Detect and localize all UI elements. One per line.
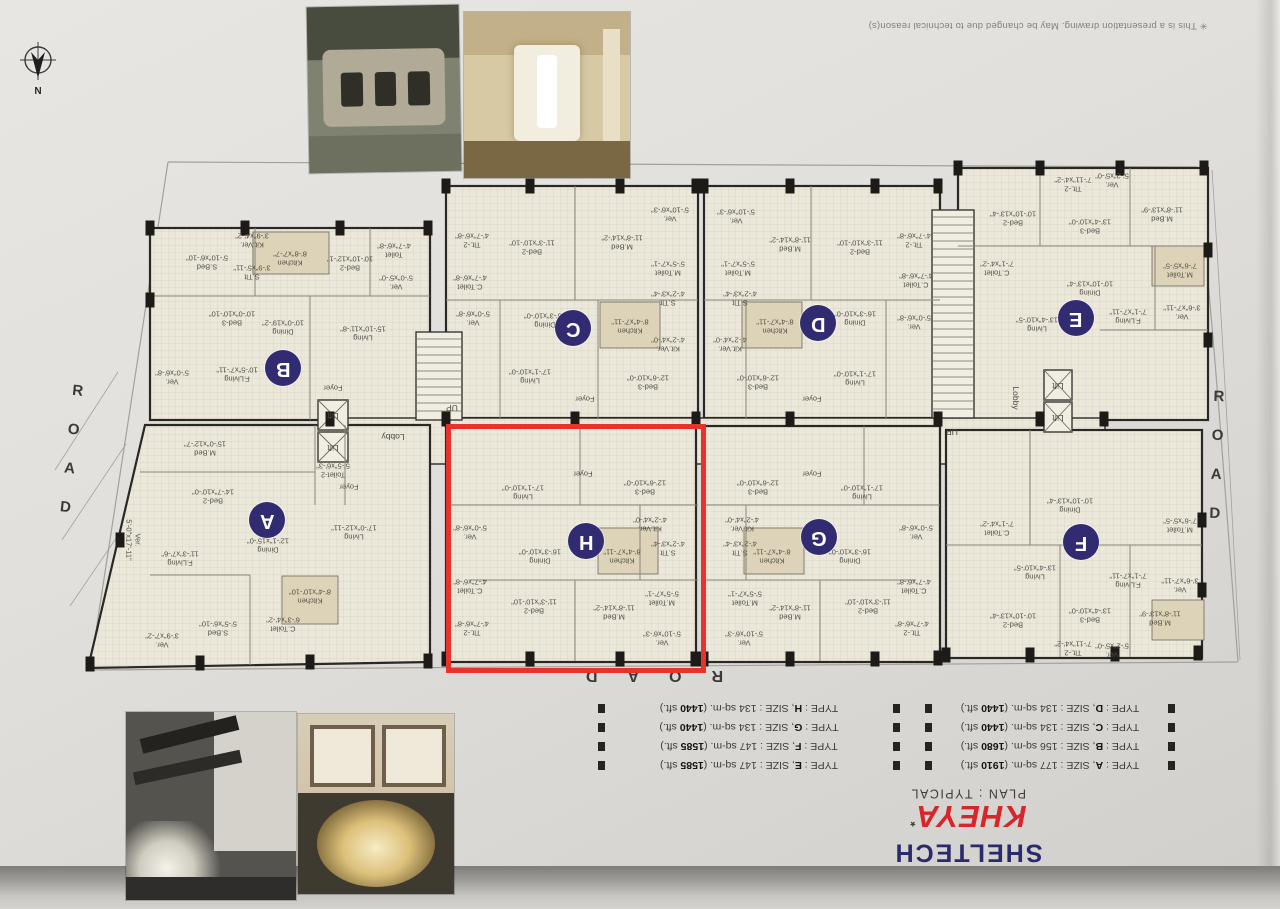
compass-n-label: N: [34, 84, 41, 95]
corridor-label: Lift: [1052, 413, 1063, 423]
bullet-square-icon: [598, 742, 605, 751]
room-label: C.Toilet 4'-7"x6'-8": [899, 272, 933, 289]
room-label: Ver. 5'-2"x5'-0": [1095, 642, 1129, 659]
room-label: Tlt.-2 7'-11"x4'-2": [1054, 640, 1091, 657]
room-label: C.Toilet 7'-1"x4'-2": [980, 520, 1014, 537]
room-label: S.Bed 5'-5"x6'-10": [199, 620, 237, 637]
legend-row: TYPE : H, SIZE : 134 sq-m. (1440 sft.): [598, 700, 900, 717]
room-label: Tlt.-2 7'-11"x4'-2": [1054, 176, 1091, 193]
room-label: F.Living 11'-3"x7'-6": [161, 550, 198, 567]
room-label: Kit.Ver. 4'-2"x4'-0": [713, 336, 747, 353]
room-label: Kitchen 8'-4"x10'-10": [289, 588, 331, 605]
photo-detail: [603, 29, 620, 142]
bullet-square-icon: [925, 723, 932, 732]
photo-detail: [382, 725, 446, 787]
room-label: C.Toilet 6'-3"x4'-2": [266, 616, 300, 633]
unit-g-circle: G: [801, 519, 837, 555]
room-label: Ver. 5'-10"x6'-3": [717, 208, 755, 225]
legend-row: TYPE : A, SIZE : 177 sq-m. (1910 sft.): [925, 757, 1175, 774]
room-label: Ver. 5'-0"x17'-11": [125, 519, 142, 560]
unit-h-highlight-box: [446, 424, 706, 673]
room-label: Ver. 3'-9"x7'-2": [145, 632, 179, 649]
photo-landscaping-rock-feature: [307, 5, 462, 174]
bullet-square-icon: [598, 704, 605, 713]
project-name: KHEYA*: [909, 801, 1026, 836]
legend-row-text: TYPE : F, SIZE : 147 sq-m. (1585 sft.): [654, 741, 843, 753]
room-label: Ver. 5'-10"x6'-3": [725, 630, 763, 647]
room-label: Ver. 5'-0"x6'-8": [897, 314, 931, 331]
legend-row-text: TYPE : A, SIZE : 177 sq-m. (1910 sft.): [955, 760, 1146, 772]
room-label: Kit.Ver. 4'-2"x4'-0": [651, 336, 685, 353]
room-label: Bed-2 10'-10"x13'-4": [990, 612, 1036, 629]
room-label: Kitchen 8'-8"x7'-7": [273, 250, 307, 267]
brand-name: SHELTECH: [894, 837, 1043, 866]
room-label: Ver. 5'-0"x5'-0": [379, 274, 413, 291]
unit-c-circle: C: [555, 310, 591, 346]
room-label: Bed-2 14'-7"x10'-0": [192, 488, 234, 505]
photo-lobby-staircase: [126, 712, 296, 900]
room-label: Foyer: [802, 394, 821, 403]
room-label: M.Bed 11'-8"x14'-2": [769, 604, 810, 621]
legend-row: TYPE : C, SIZE : 134 sq-m. (1440 sft.): [925, 719, 1175, 736]
unit-b-circle: B: [265, 350, 301, 386]
room-label: Kit.Ver. 4'-2"x4'-0": [725, 516, 759, 533]
room-label: M.Bed 15'-0"x12'-7": [184, 440, 226, 457]
room-label: Bed-2 11'-3"x10'-10": [845, 598, 891, 615]
room-label: Living 17'-1"x10'-0": [841, 484, 883, 501]
bullet-square-icon: [925, 742, 932, 751]
room-label: Ver. 3'-6"x7'-11": [1163, 304, 1200, 321]
unit-e-circle: E: [1058, 300, 1094, 336]
room-label: Ver. 3'-6"x7'-11": [1161, 577, 1198, 594]
photo-bathroom-interior: [464, 12, 630, 178]
unit-d-circle: D: [800, 305, 836, 341]
photo-detail: [408, 72, 430, 106]
room-label: Bed-2 10'-10"x13'-4": [990, 210, 1036, 227]
room-label: S.Tlt 4'-2"x3'-4": [651, 290, 685, 307]
legend-row-text: TYPE : E, SIZE : 147 sq-m. (1585 sft.): [654, 760, 844, 772]
room-label: S.Tlt 4'-2"x3'-4": [723, 540, 757, 557]
corridor-label: Lift: [327, 443, 338, 453]
room-label: Living 17'-0"x12'-11": [331, 524, 377, 541]
room-label: Bed-3 12'-6"x10'-0": [737, 374, 779, 391]
room-label: Living 15'-10"x11'-8": [340, 325, 386, 342]
room-label: M.Toilet 5'-5"x7'-1": [651, 260, 685, 277]
unit-a-circle: A: [249, 502, 285, 538]
room-label: S.Bed 5'-10"x6'-10": [186, 254, 228, 271]
plan-sheet: S.Bed 5'-10"x6'-10"Kit.Ver. 3'-9"x4'-2"S…: [0, 0, 1280, 866]
photo-detail: [464, 141, 630, 178]
room-label: C.Toilet 4'-7"x6'-8": [453, 274, 487, 291]
room-label: Dining 10'-10"x13'-4": [1047, 497, 1093, 514]
room-label: Dining 16'-3"x10'-0": [829, 548, 871, 565]
legend-row: TYPE : B, SIZE : 156 sq-m. (1680 sft.): [925, 738, 1175, 755]
room-label: Kitchen 8'-4"x7'-11": [756, 318, 793, 335]
room-label: F.Living 7'-1"x7'-11": [1109, 572, 1146, 589]
room-label: Tlt.-2 4'-7"x6'-8": [895, 620, 929, 637]
room-label: Living 13'-4"x10'-5": [1016, 316, 1058, 333]
project-mark: *: [909, 814, 915, 829]
room-label: Kitchen 8'-4"x7'-11": [611, 318, 648, 335]
room-label: M.Bed 11'-8"x14'-2": [601, 234, 642, 251]
corridor-label: Lift: [327, 411, 338, 421]
bullet-square-icon: [598, 723, 605, 732]
unit-f-circle: F: [1063, 524, 1099, 560]
legend-row: TYPE : G, SIZE : 134 sq-m. (1440 sft.): [598, 719, 900, 736]
legend-row-text: TYPE : C, SIZE : 134 sq-m. (1440 sft.): [955, 722, 1146, 734]
bullet-square-icon: [1168, 761, 1175, 770]
legend-row: TYPE : D, SIZE : 134 sq-m. (1440 sft.): [925, 700, 1175, 717]
room-label: Living 17'-1"x10'-0": [834, 370, 876, 387]
photo-detail: [310, 725, 374, 787]
photo-detail: [126, 877, 296, 900]
room-label: Bed-3 12'-6"x10'-0": [737, 479, 779, 496]
photo-wall-decor-chandelier: [298, 714, 454, 894]
room-label: Bed-3 10'-0"x10'-10": [209, 310, 255, 327]
bullet-square-icon: [925, 704, 932, 713]
room-label: Bed-3 13'-4"x10'-0": [1069, 218, 1111, 235]
room-label: Ver. 5'-0"x6'-8": [155, 369, 189, 386]
room-label: Bed-2 11'-3"x10'-10": [837, 239, 883, 256]
bullet-square-icon: [893, 723, 900, 732]
compass-north-icon: N: [16, 40, 60, 102]
bullet-square-icon: [893, 704, 900, 713]
room-label: S.Tlt 3'-9"x5'-11": [233, 264, 270, 281]
legend-types-e-h: TYPE : E, SIZE : 147 sq-m. (1585 sft.)TY…: [598, 700, 900, 774]
room-label: Foyer: [802, 469, 821, 478]
bullet-square-icon: [893, 761, 900, 770]
room-label: Dining 10'-10"x13'-4": [1067, 280, 1113, 297]
room-label: Foyer: [339, 482, 358, 491]
corridor-label: Lift: [1052, 381, 1063, 391]
room-label: C.Toilet 4'-7"x6'-8": [897, 578, 931, 595]
room-label: F.Living 10'-5"x7'-11": [216, 366, 257, 383]
room-label: Dining 10'-0"x19'-2": [262, 319, 304, 336]
room-label: S.Tlt 4'-2"x3'-4": [723, 290, 757, 307]
bullet-square-icon: [1168, 742, 1175, 751]
room-label: M.Toilet 5'-5"x7'-1": [728, 590, 762, 607]
legend-row-text: TYPE : G, SIZE : 134 sq-m. (1440 sft.): [653, 722, 844, 734]
bullet-square-icon: [598, 761, 605, 770]
bullet-square-icon: [1168, 704, 1175, 713]
legend-row-text: TYPE : D, SIZE : 134 sq-m. (1440 sft.): [955, 703, 1146, 715]
room-label: Tlt.-2 4'-7"x6'-8": [455, 232, 489, 249]
room-label: Living 17'-1"x10'-0": [509, 368, 551, 385]
photo-detail: [537, 55, 557, 128]
photo-detail: [317, 800, 436, 886]
room-label: Bed-2 10'-10"x12'-1": [327, 255, 373, 272]
bullet-square-icon: [893, 742, 900, 751]
room-label: M.Bed 11'-8"x13'-9": [1141, 206, 1182, 223]
room-label: Tlt.-2 4'-7"x6'-8": [897, 232, 931, 249]
room-label: Ver. 5'-2"x5'-0": [1095, 172, 1129, 189]
room-label: M.Bed 11'-8"x14'-2": [769, 236, 810, 253]
room-label: Dining 16'-3"x10'-0": [834, 310, 876, 327]
room-label: Foyer: [575, 394, 594, 403]
room-label: Ver. 5'-10"x6'-3": [651, 206, 689, 223]
room-label: C.Toilet 7'-1"x4'-2": [980, 260, 1014, 277]
photo-detail: [375, 72, 397, 106]
photo-detail: [341, 73, 363, 107]
legend-row-text: TYPE : H, SIZE : 134 sq-m. (1440 sft.): [654, 703, 845, 715]
room-label: Ver. 5'-0"x6'-8": [456, 310, 490, 327]
photo-detail: [309, 134, 462, 173]
room-label: Toilet-2 5'-5"x6'-3": [316, 462, 350, 479]
room-label: Kitchen 8'-4"x7'-11": [753, 548, 790, 565]
room-label: Toilet 4'-7"x6'-8": [377, 242, 411, 259]
corridor-label: UP: [446, 403, 458, 413]
room-label: Bed-3 12'-6"x10'-0": [627, 374, 669, 391]
room-label: Living 13'-4"x10'-5": [1014, 564, 1056, 581]
room-label: Foyer: [323, 383, 342, 392]
room-label: Dining 12'-1"x15'-0": [247, 537, 289, 554]
legend-row-text: TYPE : B, SIZE : 156 sq-m. (1680 sft.): [955, 741, 1146, 753]
room-label: Bed-3 13'-4"x10'-0": [1069, 607, 1111, 624]
room-label: M.Toilet 5'-5"x7'-1": [721, 260, 755, 277]
legend-types-a-d: TYPE : A, SIZE : 177 sq-m. (1910 sft.)TY…: [925, 700, 1175, 774]
plan-type-label: PLAN : TYPICAL: [910, 786, 1026, 800]
corridor-label: UP: [946, 427, 958, 437]
room-label: M.Toilet 7'-6"x5'-5": [1163, 517, 1197, 534]
room-label: Ver. 5'-0"x6'-8": [899, 524, 933, 541]
room-label: F.Living 7'-1"x7'-11": [1109, 308, 1146, 325]
disclaimer-text: ✳ This is a presentation drawing. May be…: [852, 20, 1224, 31]
room-label: M.Bed 11'-8"x13'-9": [1139, 610, 1180, 627]
corridor-label: Lobby: [381, 432, 404, 442]
bullet-square-icon: [1168, 723, 1175, 732]
legend-row: TYPE : F, SIZE : 147 sq-m. (1585 sft.): [598, 738, 900, 755]
corridor-label: Lobby: [1011, 386, 1021, 409]
bullet-square-icon: [925, 761, 932, 770]
title-block: SHELTECH KHEYA* PLAN : TYPICAL: [848, 786, 1088, 866]
legend-row: TYPE : E, SIZE : 147 sq-m. (1585 sft.): [598, 757, 900, 774]
room-label: M.Toilet 7'-6"x5'-5": [1163, 262, 1197, 279]
room-label: Bed-2 11'-3"x10'-10": [509, 239, 555, 256]
room-label: Kit.Ver. 3'-9"x4'-2": [235, 232, 269, 249]
